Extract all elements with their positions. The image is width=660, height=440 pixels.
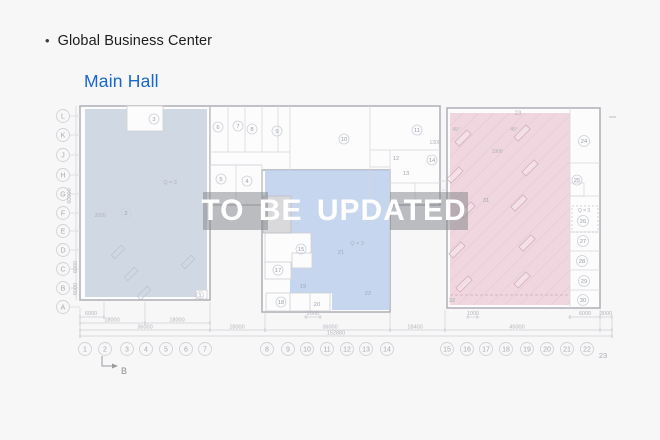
room-number: 25 (574, 178, 580, 184)
grid-col-label: 20 (543, 347, 551, 354)
room-number: 12 (393, 156, 399, 162)
grid-col-label: 15 (443, 347, 451, 354)
dimension-label: 1000 (467, 311, 479, 317)
grid-col-label: 18 (502, 347, 510, 354)
grid-col-label: 13 (362, 347, 370, 354)
dimension-label: 45000 (509, 325, 524, 331)
room-number: 7 (236, 124, 239, 130)
grid-col-label: 3 (125, 347, 129, 354)
room-number: 22 (365, 291, 371, 297)
grid-col-label: 21 (563, 347, 571, 354)
room-number: 11 (414, 128, 420, 134)
grid-col-label: 8 (265, 347, 269, 354)
annotation: 1300 (429, 140, 440, 146)
grid-col-label: 14 (383, 347, 391, 354)
dimension-label: 6000 (85, 311, 97, 317)
grid-row-label: K (61, 133, 66, 140)
annotation: 45° (452, 127, 460, 133)
dimension-label: 18000 (229, 325, 244, 331)
dimension-label: 6000 (73, 261, 79, 273)
grid-col-label: 11 (323, 347, 330, 354)
grid-col-label: 6 (184, 347, 188, 354)
room-number: 26 (580, 219, 586, 225)
grid-row-label: C (60, 267, 65, 274)
dimension-label: 18400 (407, 325, 422, 331)
room-number: 20 (314, 302, 320, 308)
dimension-label: 2000 (307, 311, 319, 317)
annotation: Q = 3 (578, 208, 591, 214)
room-number: 18 (278, 300, 284, 306)
grid-row-label: E (61, 229, 66, 236)
grid-row-label: J (61, 153, 65, 160)
grid-col-label: 2 (103, 347, 107, 354)
grid-row-label: D (60, 248, 65, 255)
dimension-label: 3000 (600, 311, 612, 317)
grid-col-label: 19 (523, 347, 531, 354)
room-number: 19 (300, 284, 306, 290)
room-number: 31 (483, 198, 489, 204)
annotation: Q = 3 (350, 241, 364, 247)
grid-col-label: 1 (83, 347, 87, 354)
grid-col-label: 22 (583, 347, 591, 354)
row-leaders (70, 116, 80, 307)
dimension-label: 18000 (104, 318, 119, 324)
grid-col-label: 5 (164, 347, 168, 354)
room-number: 28 (579, 259, 585, 265)
dimension-label: 152880 (327, 331, 345, 337)
room-number: 14 (429, 158, 436, 164)
grid-row-label: G (60, 192, 65, 199)
room-number: 10 (341, 137, 347, 143)
room-number: 29 (581, 279, 587, 285)
room-number: 5 (219, 177, 222, 183)
dimension-label: 18000 (169, 318, 184, 324)
grid-col-label: 10 (303, 347, 311, 354)
grid-row-label: F (61, 211, 65, 218)
grid-col-label: 23 (599, 351, 607, 360)
room-number: 30 (580, 298, 586, 304)
annotation: 1900 (491, 149, 502, 155)
annotation: 2000 (94, 213, 105, 219)
grid-row-label: H (60, 173, 65, 180)
room-number: 9 (275, 129, 278, 135)
dimension-label: 60000 (67, 188, 73, 203)
room-number: 1 (198, 293, 201, 299)
grid-col-label: 12 (343, 347, 351, 354)
section-marker: B (102, 356, 127, 376)
room-number: 6 (216, 125, 219, 131)
grid-row-label: A (61, 305, 66, 312)
grid-col-label: 17 (482, 347, 490, 354)
dimension-label: 36000 (137, 325, 152, 331)
room-number: 8 (250, 127, 253, 133)
annotation: 45° (510, 127, 518, 133)
grid-row-label: L (61, 114, 65, 121)
row-axis: LKJHGFEDCBA (57, 110, 70, 314)
room-number: 15 (298, 247, 304, 253)
room-number: 2 (124, 211, 127, 217)
grid-row-label: B (61, 286, 66, 293)
dimension-label: 6000 (73, 283, 79, 295)
room-number: 3 (152, 117, 155, 123)
annotation: Q = 3 (163, 180, 177, 186)
grid-col-label: 9 (286, 347, 290, 354)
dimension-ticks (80, 315, 612, 338)
grid-col-label: 7 (203, 347, 207, 354)
room-number: 13 (403, 171, 409, 177)
room-number: 32 (449, 298, 455, 304)
grid-col-label: 16 (463, 347, 471, 354)
room-number: 27 (580, 239, 586, 245)
dimension-label: 6000 (579, 311, 591, 317)
watermark-text: TO BE UPDATED (198, 192, 470, 230)
annotation: 23 (515, 111, 522, 117)
grid-col-label: 4 (144, 347, 148, 354)
room-number: 21 (338, 250, 344, 256)
section-marker-label: B (121, 366, 127, 376)
col-axis: 1234567891011121314151617181920212223 (79, 343, 608, 361)
room-number: 24 (581, 139, 588, 145)
room-number: 17 (275, 268, 281, 274)
zone-left (85, 109, 207, 297)
slide: • Global Business Center Main Hall (0, 0, 660, 440)
